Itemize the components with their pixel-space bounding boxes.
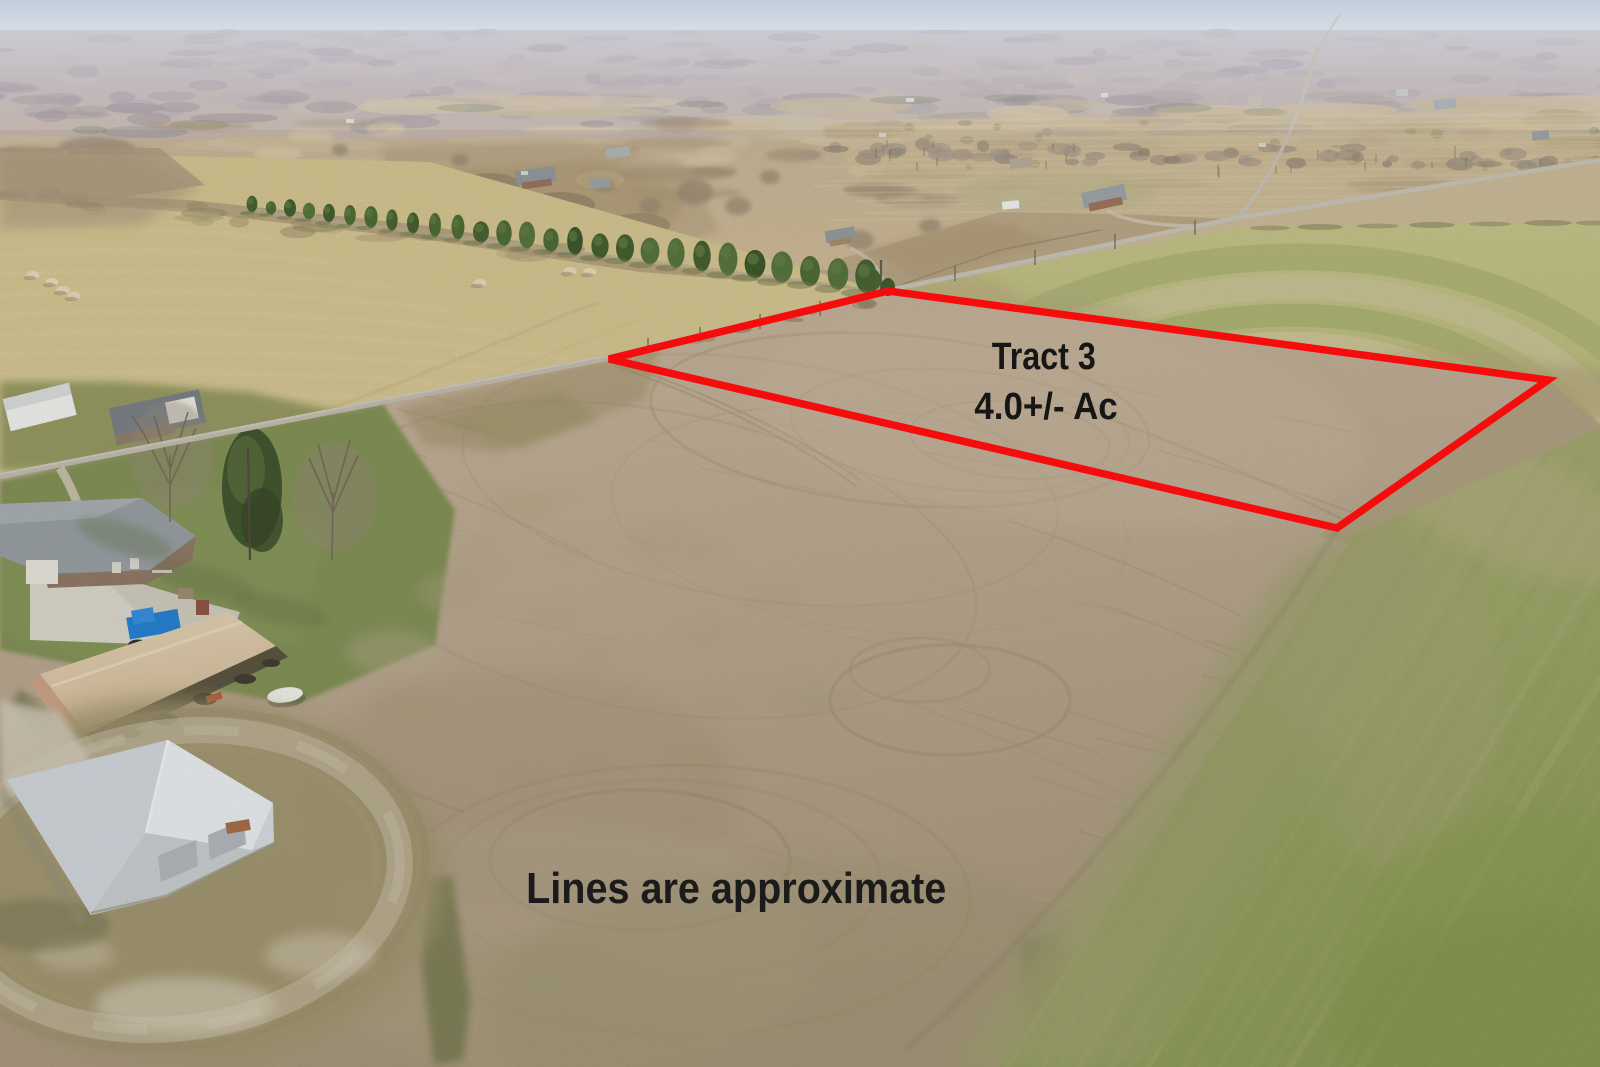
svg-text:4.0+/- Ac: 4.0+/- Ac [974, 385, 1117, 428]
svg-text:Tract 3: Tract 3 [992, 336, 1096, 378]
svg-text:Lines are approximate: Lines are approximate [526, 863, 946, 912]
